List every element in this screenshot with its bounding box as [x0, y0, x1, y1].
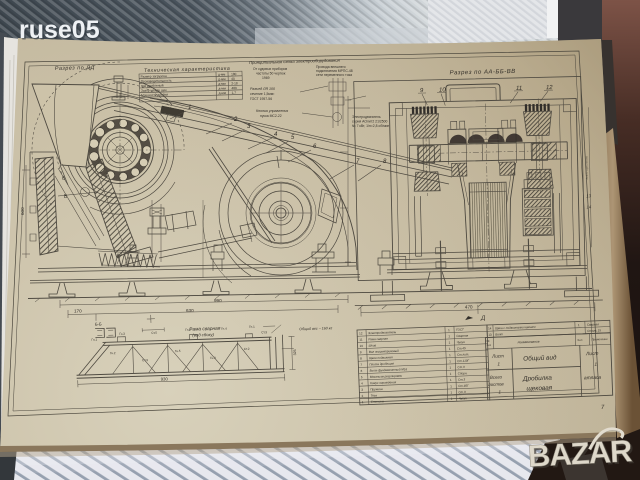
svg-text:Наименование: Наименование	[518, 339, 540, 344]
svg-text:Кол: Кол	[577, 338, 582, 342]
svg-text:ГОСТ 1957-56: ГОСТ 1957-56	[250, 97, 272, 101]
svg-text:ruse05: ruse05	[19, 16, 100, 44]
svg-text:Гн.5: Гн.5	[175, 349, 181, 353]
svg-text:Кнопка управления: Кнопка управления	[256, 109, 288, 113]
svg-text:12: 12	[359, 331, 363, 335]
svg-text:Электродвигатель: Электродвигатель	[352, 115, 381, 119]
svg-text:Лист: Лист	[585, 351, 599, 358]
svg-text:Ст.45: Ст.45	[457, 346, 466, 350]
svg-text:480: 480	[231, 86, 237, 90]
svg-text:От судовых приборов: От судовых приборов	[253, 67, 287, 71]
svg-text:А-377 крепление: А-377 крепление	[584, 155, 589, 179]
svg-text:Ст.3: Ст.3	[458, 377, 466, 381]
svg-text:Чугун: Чугун	[456, 340, 465, 344]
svg-text:Гн.4: Гн.4	[221, 327, 227, 331]
svg-text:Шкив: Шкив	[369, 343, 377, 347]
svg-text:180: 180	[231, 72, 237, 76]
svg-text:13: 13	[586, 193, 591, 198]
svg-text:930: 930	[161, 376, 169, 381]
svg-text:Лист: Лист	[491, 353, 504, 358]
svg-text:470: 470	[465, 304, 473, 309]
svg-text:Тяга: Тяга	[370, 393, 377, 397]
svg-text:Сварная: Сварная	[456, 334, 468, 338]
svg-text:ГОСТ: ГОСТ	[456, 327, 465, 331]
svg-text:щековая: щековая	[526, 385, 553, 393]
svg-text:Б-Б: Б-Б	[95, 321, 102, 326]
svg-text:д-мм: д-мм	[218, 72, 225, 76]
svg-text:листов: листов	[487, 381, 504, 387]
svg-text:14: 14	[488, 326, 492, 330]
svg-text:2: 2	[233, 117, 238, 123]
svg-text:Чугун: Чугун	[459, 396, 468, 400]
svg-text:2-18: 2-18	[231, 81, 238, 85]
svg-text:Ст.5: Ст.5	[151, 331, 157, 335]
svg-text:Всего: Всего	[490, 374, 503, 379]
svg-text:Сборн.: Сборн.	[458, 371, 468, 375]
svg-text:Дробилка: Дробилка	[522, 374, 553, 383]
svg-text:Станина: Станина	[371, 399, 384, 404]
svg-text:Примечание: Примечание	[591, 337, 608, 342]
svg-text:Разъед ЛЯ 100: Разъед ЛЯ 100	[250, 87, 275, 91]
svg-text:BAZAR: BAZAR	[527, 433, 633, 473]
svg-text:сечение 1,5мм²: сечение 1,5мм²	[250, 92, 275, 96]
svg-text:630: 630	[186, 308, 194, 313]
svg-text:13: 13	[488, 333, 492, 337]
svg-text:600: 600	[20, 207, 25, 215]
svg-text:д-мм: д-мм	[218, 86, 225, 90]
svg-text:Ст.65Г: Ст.65Г	[458, 384, 469, 388]
svg-text:д-мм: д-мм	[219, 91, 226, 95]
svg-text:40: 40	[231, 77, 235, 81]
svg-text:д-мм: д-мм	[218, 82, 225, 86]
svg-text:Сталь 15: Сталь 15	[587, 328, 601, 333]
svg-text:Сварная: Сварная	[587, 322, 599, 326]
svg-text:325: 325	[293, 349, 297, 355]
svg-text:б: б	[62, 176, 65, 182]
svg-text:1: 1	[188, 105, 191, 111]
svg-text:Ст.3: Ст.3	[142, 358, 148, 362]
svg-text:Болт: Болт	[495, 332, 503, 336]
svg-text:170: 170	[74, 309, 82, 314]
svg-text:д-мм: д-мм	[218, 77, 225, 81]
svg-text:Гн.3: Гн.3	[119, 332, 125, 336]
svg-text:Рама сварная: Рама сварная	[368, 337, 388, 342]
svg-text:990: 990	[214, 298, 222, 303]
svg-text:10: 10	[360, 344, 364, 348]
svg-text:Ст.2: Ст.2	[244, 347, 250, 351]
svg-text:Гн.1: Гн.1	[249, 325, 255, 329]
svg-text:Гн.2: Гн.2	[110, 351, 116, 355]
svg-text:Ст.лит.: Ст.лит.	[457, 352, 469, 356]
svg-text:Ст.3: Ст.3	[457, 365, 465, 369]
svg-text:Ст.3: Ст.3	[261, 330, 267, 334]
svg-text:атласа: атласа	[584, 376, 602, 382]
svg-text:Гн.1: Гн.1	[91, 338, 97, 342]
svg-text:Мощность дробил: Мощность дробил	[141, 93, 168, 98]
svg-text:Ст.110Г: Ст.110Г	[457, 359, 469, 363]
svg-text:Гн.3: Гн.3	[210, 356, 216, 360]
svg-text:Ст.3: Ст.3	[458, 390, 466, 394]
svg-text:1,7: 1,7	[232, 91, 237, 95]
svg-text:Гн.2: Гн.2	[185, 328, 191, 332]
svg-text:1969: 1969	[262, 76, 270, 80]
svg-text:14: 14	[587, 204, 592, 209]
svg-text:серия АОлит2 21/2500: серия АОлит2 21/2500	[352, 120, 388, 124]
svg-text:сети переменного тока: сети переменного тока	[316, 73, 352, 77]
svg-text:Разрез по ДД: Разрез по ДД	[55, 65, 95, 72]
svg-text:Общий вид: Общий вид	[523, 353, 557, 362]
svg-text:№ 7 кВт, 1/н=2,8 об/мин: № 7 кВт, 1/н=2,8 об/мин	[352, 124, 389, 128]
svg-text:Д: Д	[480, 316, 486, 322]
svg-text:Пружина: Пружина	[370, 387, 383, 391]
svg-text:11: 11	[359, 338, 363, 342]
svg-text:частоты 50 чертеж: частоты 50 чертеж	[256, 72, 286, 76]
svg-text:пуска МС2-22: пуска МС2-22	[260, 114, 282, 118]
